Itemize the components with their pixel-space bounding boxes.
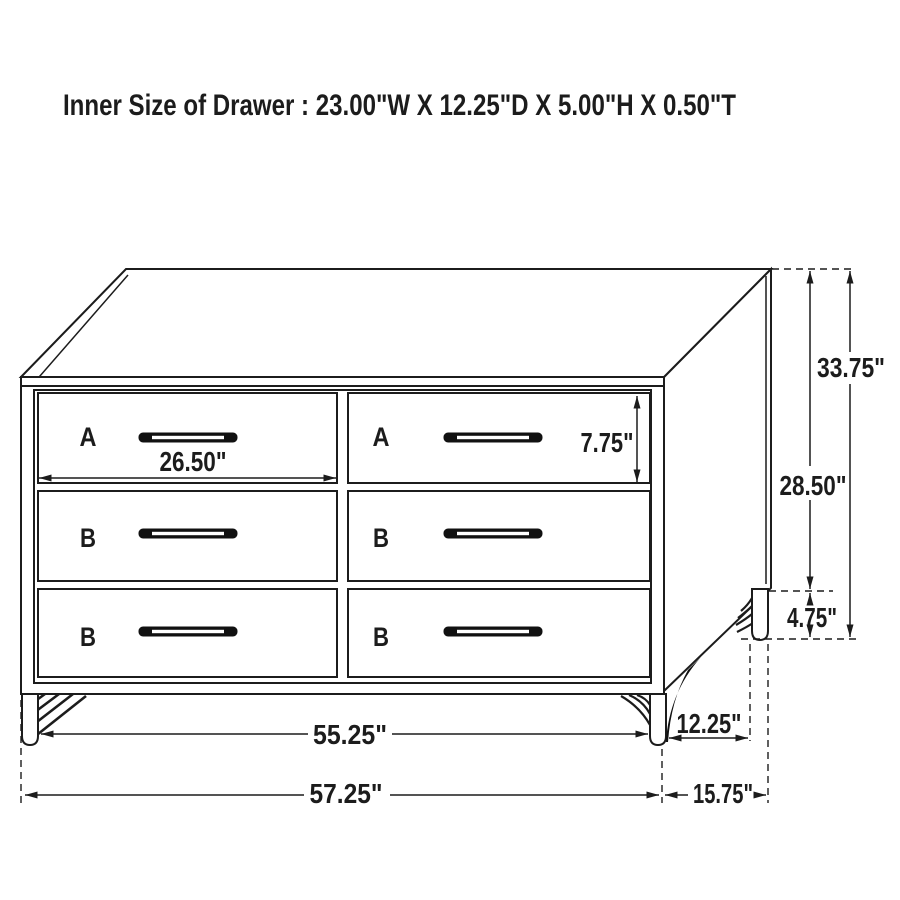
dimension-case-height: 28.50" xyxy=(780,271,847,589)
dresser-cabinet: A A B B B B xyxy=(21,269,771,694)
drawer-label-b4: B xyxy=(373,622,389,652)
dimension-label-depth-between-legs: 12.25" xyxy=(677,708,742,739)
dimension-label-case-height: 28.50" xyxy=(780,470,847,501)
front-left-leg xyxy=(22,694,86,745)
drawer-label-b1: B xyxy=(80,523,96,553)
drawer-label-b3: B xyxy=(80,622,96,652)
dimension-leg-height: 4.75" xyxy=(787,593,837,637)
furniture-dimension-diagram: Inner Size of Drawer : 23.00"W X 12.25"D… xyxy=(0,0,900,900)
drawer-handle-icon xyxy=(444,529,542,538)
dresser-diagram-canvas: Inner Size of Drawer : 23.00"W X 12.25"D… xyxy=(0,0,900,900)
dimension-depth-between-legs: 12.25" xyxy=(669,708,748,739)
dimension-overall-height: 33.75" xyxy=(817,271,885,637)
dimension-overall-width: 57.25" xyxy=(25,778,659,809)
dimension-label-leg-height: 4.75" xyxy=(787,602,837,633)
dimension-width-between-legs: 55.25" xyxy=(41,719,648,750)
drawer-label-a1: A xyxy=(80,422,97,452)
drawer-handle-icon xyxy=(139,627,237,636)
dimension-overall-depth: 15.75" xyxy=(665,778,766,809)
drawer-handle-icon xyxy=(444,627,542,636)
drawer-handle-icon xyxy=(444,433,542,442)
dimension-label-overall-depth: 15.75" xyxy=(693,778,753,809)
dimension-label-drawer-face-height: 7.75" xyxy=(581,427,634,458)
drawer-label-b2: B xyxy=(373,523,389,553)
drawer-handle-icon xyxy=(139,529,237,538)
diagram-title: Inner Size of Drawer : 23.00"W X 12.25"D… xyxy=(63,89,736,122)
dimension-label-width-between-legs: 55.25" xyxy=(313,719,387,750)
dimension-label-overall-width: 57.25" xyxy=(310,778,383,809)
cabinet-top-face xyxy=(21,269,771,377)
drawer-label-a2: A xyxy=(373,422,390,452)
drawer-handle-icon xyxy=(139,433,237,442)
dimension-label-overall-height: 33.75" xyxy=(817,352,885,383)
dimension-label-drawer-face-width: 26.50" xyxy=(160,446,227,477)
